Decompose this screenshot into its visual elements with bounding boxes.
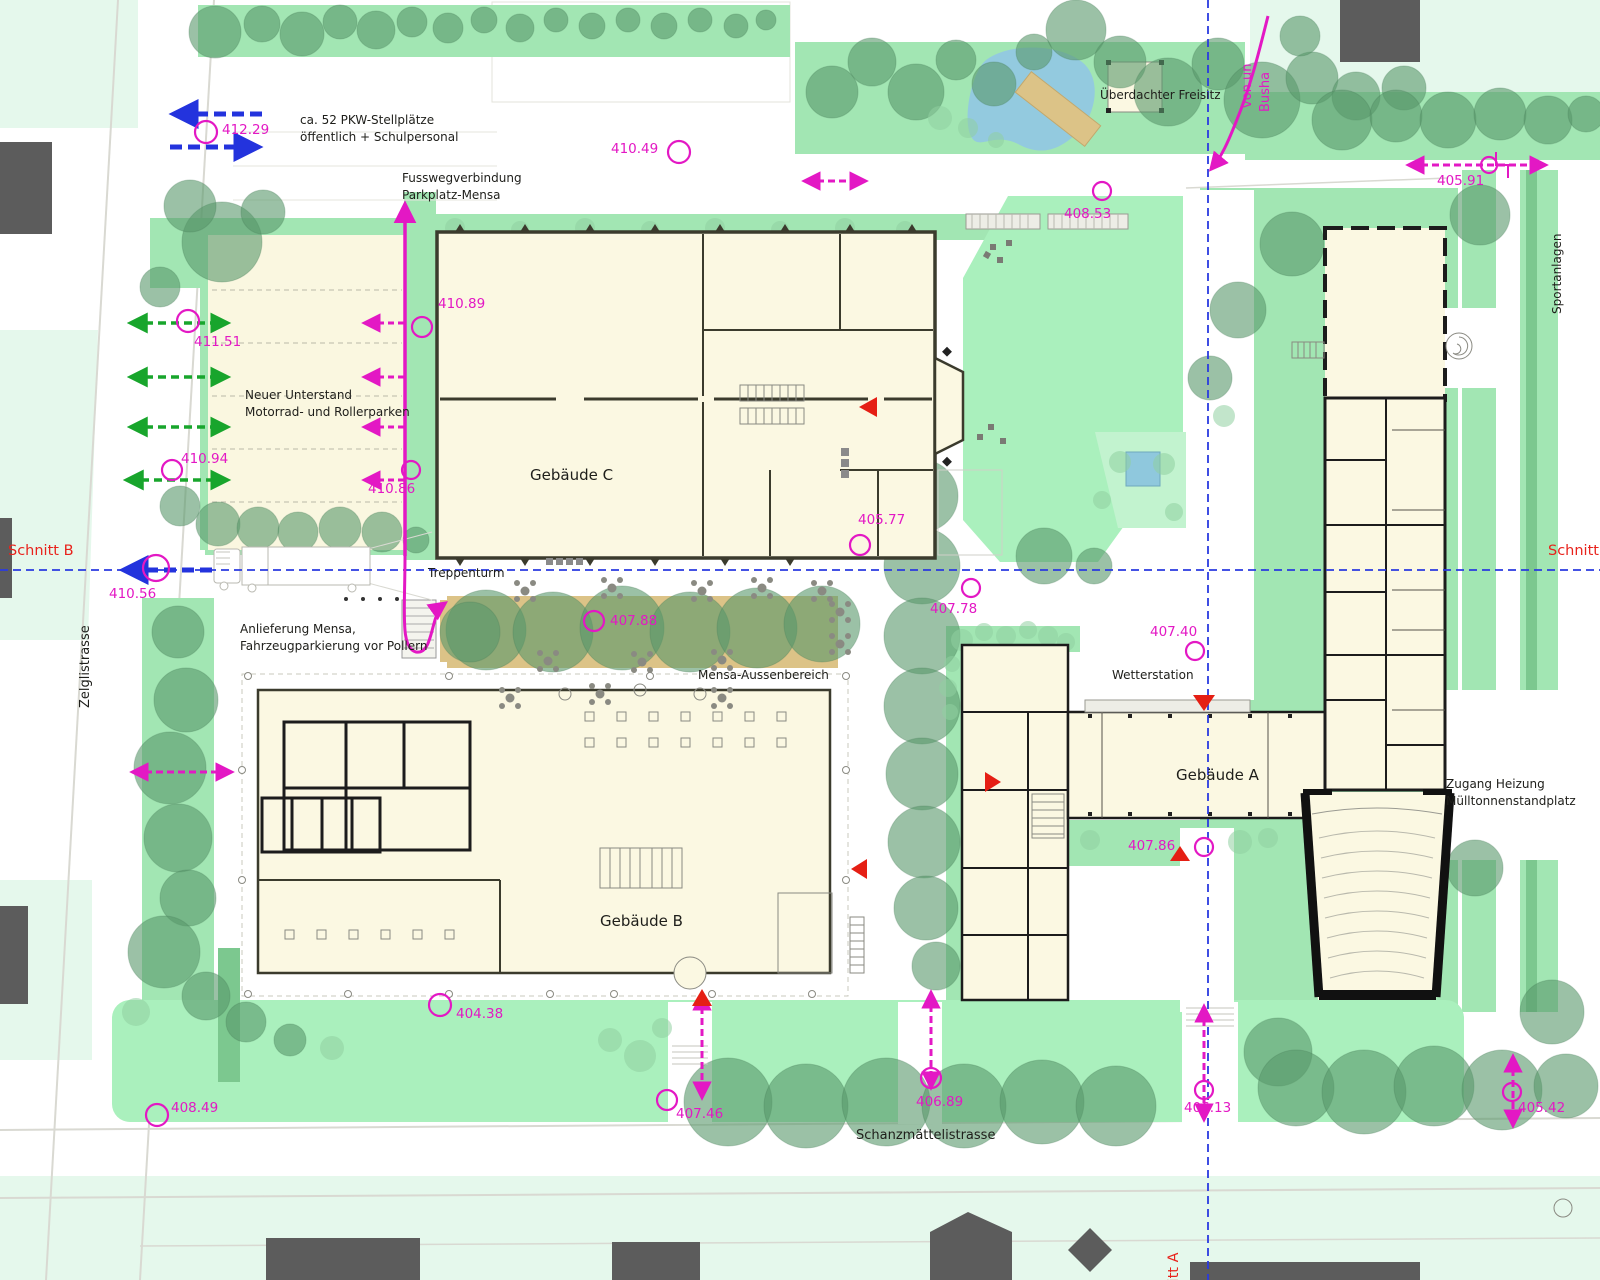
building-a-label: Gebäude A: [1176, 766, 1259, 785]
weather-station-label: Wetterstation: [1112, 668, 1194, 683]
elevation-408-49: 408.49: [171, 1100, 218, 1117]
parking-note-line2: öffentlich + Schulpersonal: [300, 130, 458, 145]
entry-canopy: [1085, 700, 1250, 712]
heating-access-line2: Mülltonnenstandplatz: [1446, 794, 1576, 809]
freisitz-label: Überdachter Freisitz: [1100, 88, 1221, 103]
street-zelglistrasse-label: Zelglistrasse: [78, 625, 94, 708]
elevation-404-38: 404.38: [456, 1006, 503, 1023]
building-c-label: Gebäude C: [530, 466, 613, 485]
elevation-408-53: 408.53: [1064, 206, 1111, 223]
schnitt-b-right-label: Schnitt B: [1548, 542, 1600, 560]
elevation-407-40: 407.40: [1150, 624, 1197, 641]
elevation-410-86: 410.86: [368, 481, 415, 498]
elevation-405-42: 405.42: [1518, 1100, 1565, 1117]
bus-route-label-line1: von un: [1240, 64, 1256, 109]
elevation-410-89: 410.89: [438, 296, 485, 313]
delivery-note-line2: Fahrzeugparkierung vor Pollern: [240, 639, 427, 654]
parking-note-line1: ca. 52 PKW-Stellplätze: [300, 113, 434, 128]
elevation-407-86: 407.86: [1128, 838, 1175, 855]
elevation-405-77: 405.77: [858, 512, 905, 529]
building-b-label: Gebäude B: [600, 912, 683, 931]
elevation-411-51: 411.51: [194, 334, 241, 351]
footpath-note-line2: Parkplatz-Mensa: [402, 188, 501, 203]
elevation-405-91: 405.91: [1437, 173, 1484, 190]
elevation-412-29: 412.29: [222, 122, 269, 139]
treppenturm-label: Treppenturm: [428, 566, 505, 581]
heating-access-line1: Zugang Heizung: [1446, 777, 1545, 792]
sportanlagen-label: Sportanlagen: [1550, 234, 1565, 314]
schnitt-b-left-label: Schnitt B: [8, 542, 74, 560]
elevation-407-88: 407.88: [610, 613, 657, 630]
shelter-note-line1: Neuer Unterstand: [245, 388, 352, 403]
mensa-outdoor-label: Mensa-Aussenbereich: [698, 668, 829, 683]
elevation-410-49: 410.49: [611, 141, 658, 158]
delivery-note-line1: Anlieferung Mensa,: [240, 622, 356, 637]
elevation-410-56: 410.56: [109, 586, 156, 603]
elevation-407-46: 407.46: [676, 1106, 723, 1123]
elevation-410-94: 410.94: [181, 451, 228, 468]
street-schanzmaettelistrasse-label: Schanzmättelistrasse: [856, 1128, 995, 1144]
aula: [1303, 792, 1452, 1000]
footpath-note-line1: Fusswegverbindung: [402, 171, 522, 186]
building-b: [239, 673, 865, 998]
site-plan: ca. 52 PKW-Stellplätze öffentlich + Schu…: [0, 0, 1600, 1280]
bollard-dots: [344, 597, 399, 601]
bay-entrance: [935, 358, 963, 454]
schnitt-a-label: Schnitt A: [1165, 1253, 1183, 1280]
elevation-406-13: 406.13: [1184, 1100, 1231, 1117]
elevation-407-78: 407.78: [930, 601, 977, 618]
entry-rotunda: [674, 957, 706, 989]
elevation-406-89: 406.89: [916, 1094, 963, 1111]
shelter-note-line2: Motorrad- und Rollerparken: [245, 405, 410, 420]
bus-route-label-line2: Busha: [1258, 72, 1274, 112]
